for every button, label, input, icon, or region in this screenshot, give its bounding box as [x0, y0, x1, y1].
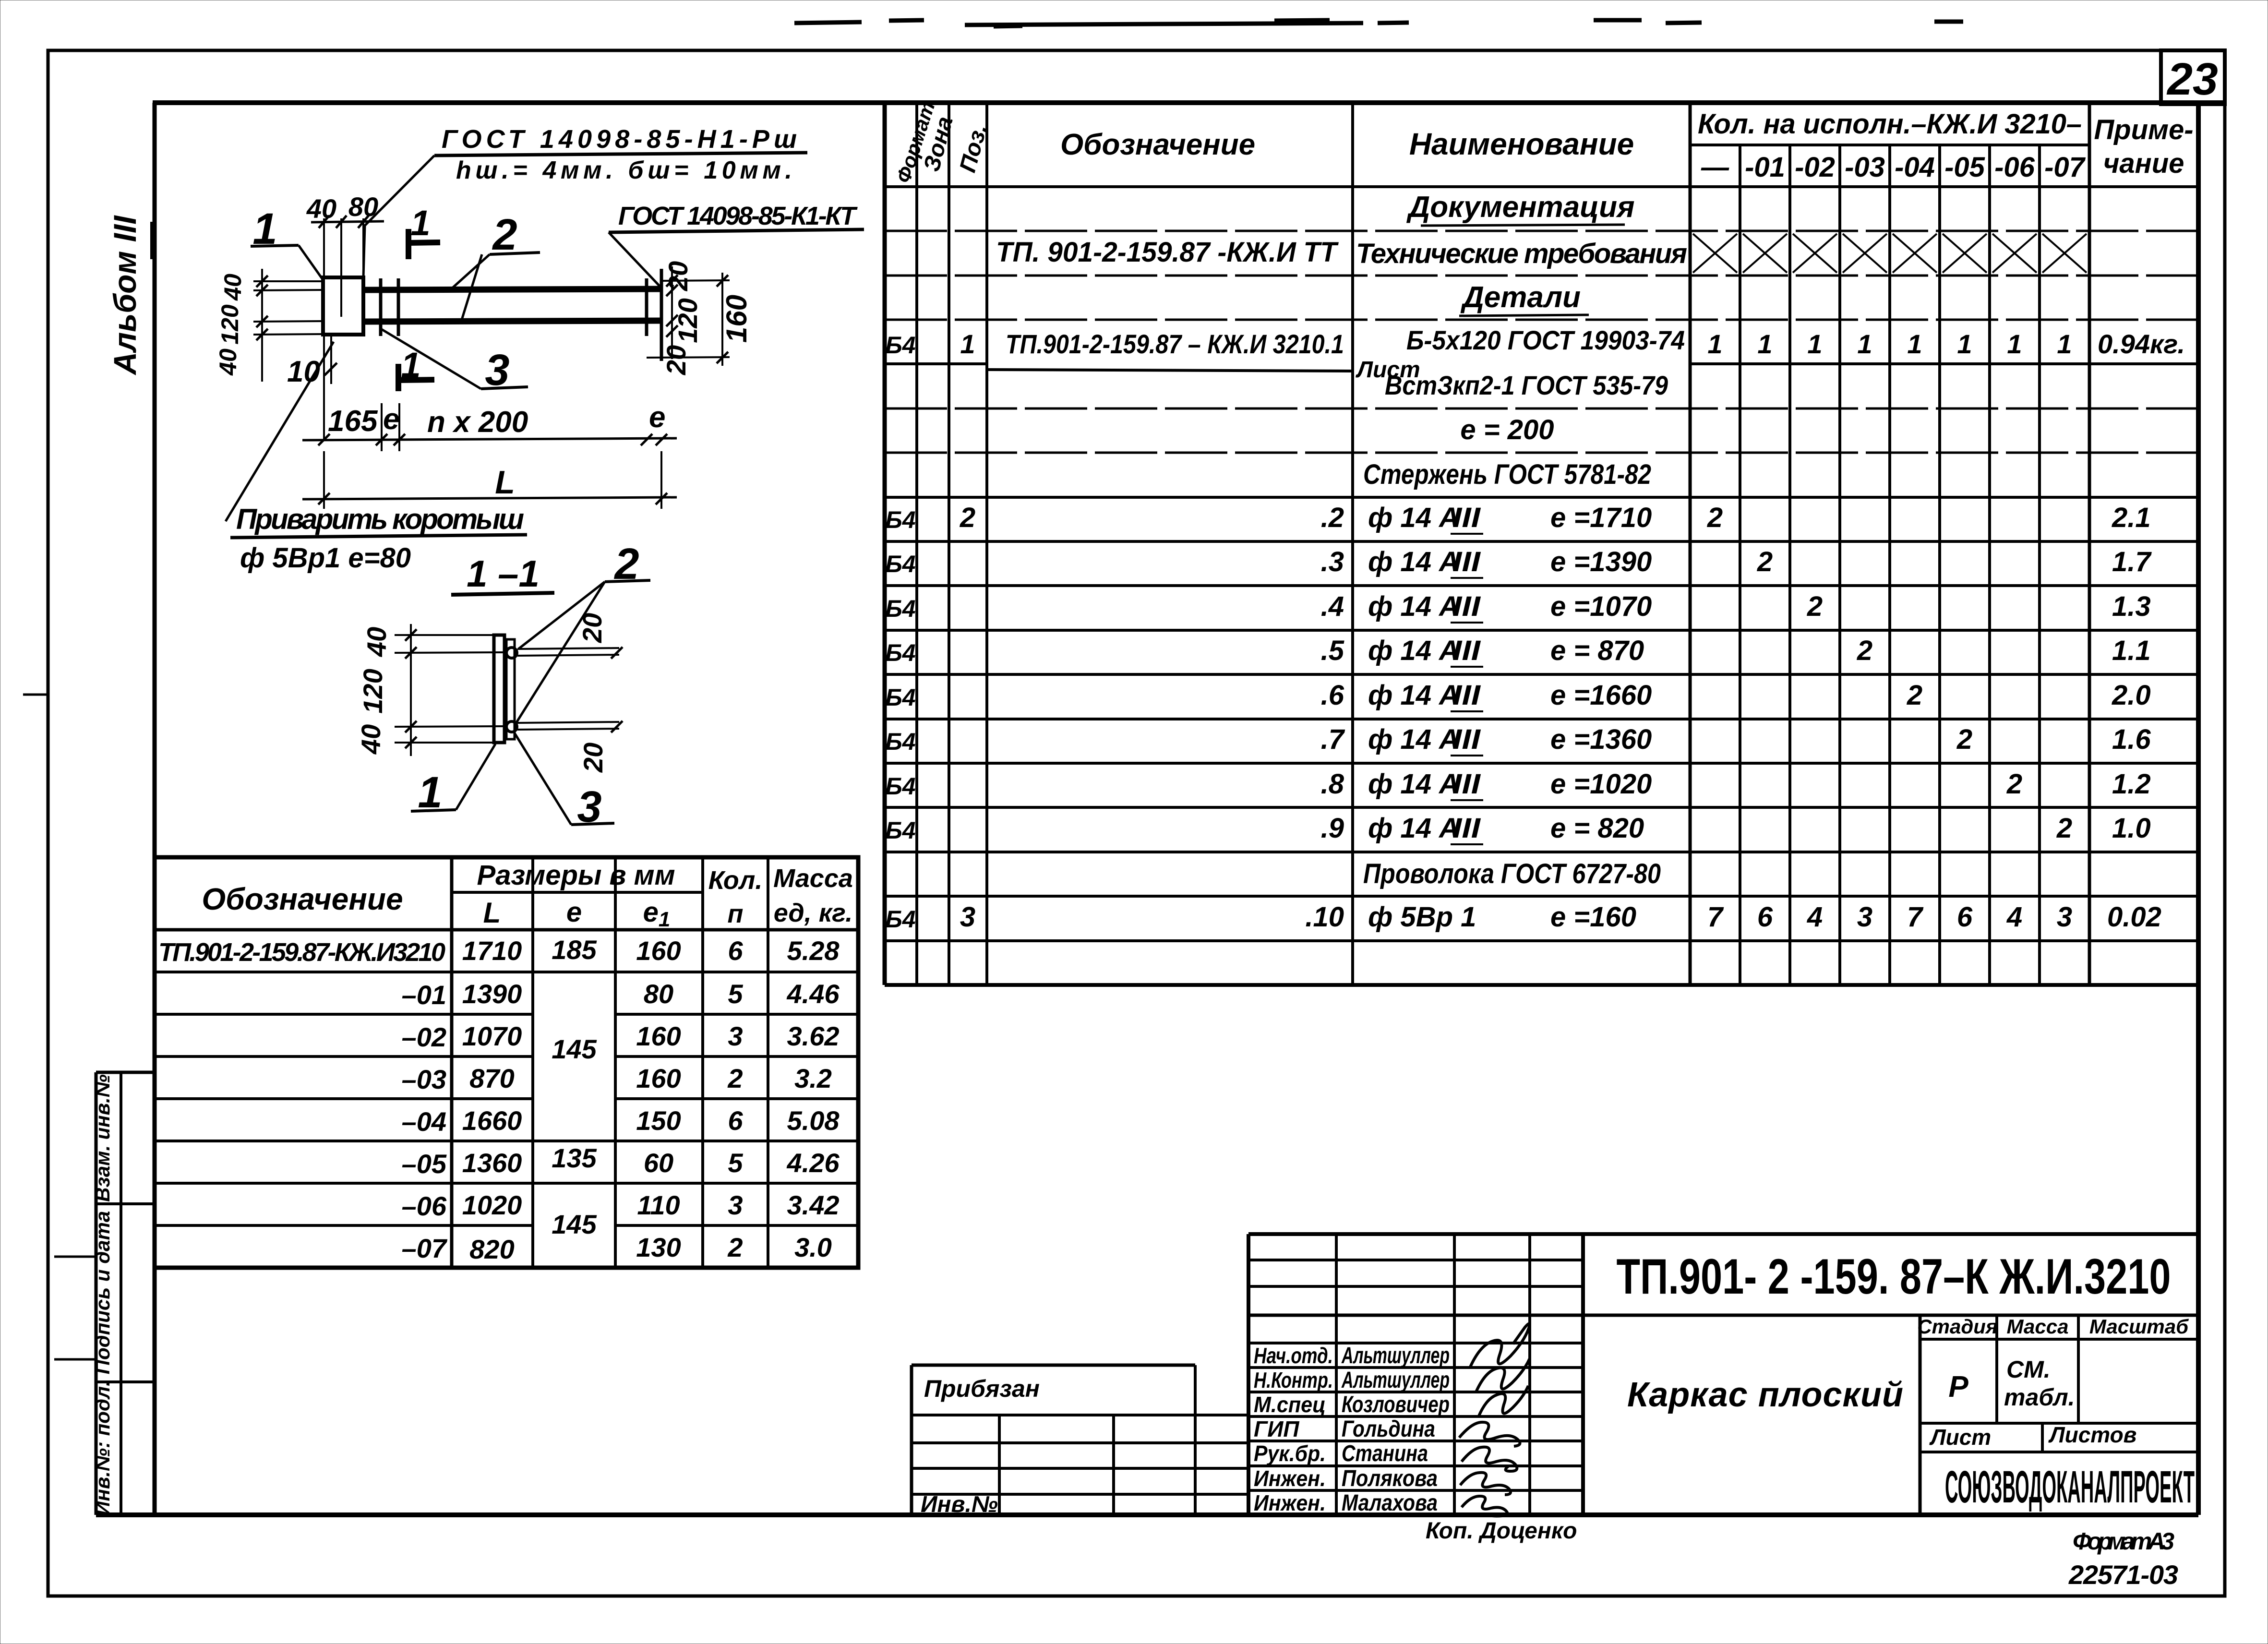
svg-text:ф 14 А: ф 14 А — [1368, 680, 1459, 711]
svg-text:2: 2 — [1757, 546, 1773, 577]
svg-text:ТП. 901-2-159.87 -КЖ.И ТТ: ТП. 901-2-159.87 -КЖ.И ТТ — [996, 237, 1339, 268]
svg-text:1: 1 — [1757, 329, 1772, 359]
svg-text:–05: –05 — [402, 1149, 447, 1179]
svg-text:ф 14 А: ф 14 А — [1368, 724, 1459, 755]
svg-text:Прибязан: Прибязан — [924, 1375, 1040, 1402]
svg-text:3.42: 3.42 — [787, 1190, 840, 1220]
svg-text:3.62: 3.62 — [787, 1021, 840, 1051]
svg-text:20: 20 — [661, 345, 691, 375]
svg-text:Б4: Б4 — [885, 332, 915, 359]
svg-text:150: 150 — [636, 1105, 681, 1136]
svg-text:1.6: 1.6 — [2112, 724, 2151, 755]
svg-text:е =1360: е =1360 — [1550, 724, 1652, 755]
svg-text:Инжен.: Инжен. — [1254, 1490, 1326, 1515]
svg-text:Б4: Б4 — [885, 639, 915, 666]
svg-text:ф 14 А: ф 14 А — [1368, 813, 1459, 844]
svg-text:Б4: Б4 — [885, 773, 915, 800]
svg-text:Стадия: Стадия — [1917, 1315, 1997, 1338]
svg-text:Приварить коротыш: Приварить коротыш — [236, 503, 524, 535]
svg-text:е =1020: е =1020 — [1550, 768, 1652, 800]
svg-text:2: 2 — [2056, 813, 2072, 844]
svg-text:Козловичер: Козловичер — [1342, 1392, 1450, 1417]
svg-text:СОЮЗВОДОКАНАЛПРОЕКТ: СОЮЗВОДОКАНАЛПРОЕКТ — [1945, 1462, 2195, 1512]
svg-text:III: III — [1452, 724, 1481, 755]
svg-text:1070: 1070 — [462, 1021, 522, 1051]
svg-text:ТП.901- 2 -159. 87–К Ж.И.3210: ТП.901- 2 -159. 87–К Ж.И.3210 — [1617, 1249, 2171, 1305]
svg-text:n х 200: n х 200 — [427, 406, 528, 439]
svg-text:Взам. инв.№: Взам. инв.№ — [91, 1074, 114, 1202]
svg-text:ТП.901-2-159.87 – КЖ.И 3210.: ТП.901-2-159.87 – КЖ.И 3210.1 — [1006, 329, 1344, 359]
svg-text:е: е — [566, 897, 582, 928]
svg-text:145: 145 — [552, 1034, 597, 1064]
svg-text:-04: -04 — [1895, 152, 1935, 183]
svg-text:Проволока ГОСТ 6727-80: Проволока ГОСТ 6727-80 — [1363, 858, 1661, 889]
svg-text:160: 160 — [636, 1021, 681, 1051]
svg-text:820: 820 — [469, 1234, 514, 1264]
svg-text:6: 6 — [728, 936, 743, 966]
svg-text:20: 20 — [663, 261, 693, 291]
svg-text:ф 14 А: ф 14 А — [1368, 502, 1459, 533]
svg-text:–07: –07 — [402, 1233, 448, 1263]
svg-text:-01: -01 — [1745, 152, 1785, 183]
svg-text:23: 23 — [2166, 54, 2218, 105]
svg-text:185: 185 — [552, 935, 597, 965]
svg-text:2: 2 — [1807, 591, 1823, 622]
svg-text:Кол.: Кол. — [708, 866, 763, 895]
svg-text:ф 14 А: ф 14 А — [1368, 546, 1459, 577]
svg-text:110: 110 — [637, 1190, 680, 1220]
svg-text:—: — — [1701, 152, 1729, 183]
svg-text:е =1710: е =1710 — [1550, 502, 1652, 533]
svg-text:7: 7 — [1907, 901, 1924, 933]
svg-text:е: е — [649, 401, 665, 434]
svg-text:2: 2 — [1956, 724, 1972, 755]
svg-text:80: 80 — [348, 192, 378, 222]
svg-text:ГОСТ 14098-85-Н1-Рш: ГОСТ 14098-85-Н1-Рш — [442, 125, 797, 154]
svg-text:ГОСТ 14098-85-К1-КТ: ГОСТ 14098-85-К1-КТ — [618, 202, 858, 230]
svg-text:.8: .8 — [1321, 768, 1344, 800]
svg-text:22571-03: 22571-03 — [2068, 1560, 2178, 1590]
svg-text:L: L — [495, 464, 515, 501]
svg-text:табл.: табл. — [2004, 1384, 2075, 1411]
svg-text:–06: –06 — [402, 1191, 447, 1221]
svg-text:.4: .4 — [1321, 591, 1344, 622]
svg-text:3: 3 — [1857, 901, 1872, 933]
svg-text:3: 3 — [2057, 901, 2072, 933]
svg-text:е =1390: е =1390 — [1550, 546, 1652, 577]
svg-text:0.02: 0.02 — [2107, 901, 2161, 933]
svg-text:3: 3 — [960, 901, 975, 933]
svg-text:160: 160 — [720, 295, 753, 343]
svg-text:Детали: Детали — [1460, 281, 1581, 314]
svg-text:1 –1: 1 –1 — [467, 552, 540, 595]
svg-text:1: 1 — [1807, 329, 1822, 359]
svg-text:ф 14 А: ф 14 А — [1368, 591, 1459, 622]
svg-text:Б4: Б4 — [885, 906, 915, 933]
svg-text:Масса: Масса — [773, 864, 853, 893]
svg-text:Обозначение: Обозначение — [1060, 128, 1255, 161]
svg-text:3: 3 — [728, 1021, 743, 1051]
svg-text:Инв.№: подл.: Инв.№: подл. — [91, 1380, 114, 1515]
svg-text:7: 7 — [1707, 901, 1724, 933]
svg-text:Инжен.: Инжен. — [1254, 1466, 1326, 1491]
svg-text:4.26: 4.26 — [787, 1148, 840, 1178]
svg-text:2: 2 — [727, 1232, 743, 1262]
svg-text:1: 1 — [1907, 329, 1922, 359]
svg-text:ФорматА3: ФорматА3 — [2073, 1528, 2174, 1555]
svg-text:60: 60 — [644, 1148, 673, 1178]
svg-text:е = 820: е = 820 — [1550, 813, 1644, 844]
svg-text:-03: -03 — [1845, 152, 1885, 183]
svg-text:135: 135 — [552, 1143, 597, 1173]
svg-text:.3: .3 — [1321, 546, 1344, 577]
svg-text:Документация: Документация — [1406, 191, 1634, 224]
svg-text:3.0: 3.0 — [794, 1232, 832, 1262]
svg-text:.6: .6 — [1321, 680, 1344, 711]
svg-text:1660: 1660 — [462, 1105, 522, 1136]
svg-text:III: III — [1452, 635, 1481, 666]
svg-text:Альбом III: Альбом III — [107, 215, 143, 376]
svg-text:Альтшуллер: Альтшуллер — [1341, 1368, 1450, 1393]
svg-text:Б4: Б4 — [885, 506, 915, 533]
svg-text:е1: е1 — [643, 897, 671, 931]
svg-text:160: 160 — [636, 936, 681, 966]
svg-text:е =1070: е =1070 — [1550, 591, 1652, 622]
svg-text:145: 145 — [552, 1209, 597, 1239]
svg-text:ТП.901-2-159.87-КЖ.И3210: ТП.901-2-159.87-КЖ.И3210 — [158, 938, 445, 967]
svg-text:–01: –01 — [402, 980, 446, 1010]
svg-text:е = 200: е = 200 — [1460, 414, 1554, 445]
svg-text:Коп. Доценко: Коп. Доценко — [1426, 1518, 1577, 1544]
svg-text:40: 40 — [361, 627, 392, 657]
svg-text:-05: -05 — [1944, 152, 1985, 183]
svg-text:е: е — [383, 403, 399, 436]
svg-text:1: 1 — [1707, 329, 1722, 359]
svg-text:1: 1 — [1857, 329, 1872, 359]
svg-text:1: 1 — [410, 203, 430, 243]
svg-text:Альтшуллер: Альтшуллер — [1341, 1343, 1450, 1368]
svg-text:5: 5 — [728, 1148, 743, 1178]
svg-text:hш.= 4мм. бш= 10мм.: hш.= 4мм. бш= 10мм. — [456, 156, 792, 184]
svg-text:2: 2 — [1857, 635, 1872, 666]
svg-text:ед, кг.: ед, кг. — [774, 899, 853, 927]
svg-text:Приме-: Приме- — [2094, 114, 2193, 145]
svg-text:.5: .5 — [1321, 635, 1344, 666]
svg-text:3.2: 3.2 — [794, 1063, 832, 1093]
svg-text:Наименование: Наименование — [1409, 127, 1634, 161]
svg-text:4: 4 — [1807, 901, 1823, 933]
svg-text:1: 1 — [960, 329, 975, 359]
svg-text:М.спец: М.спец — [1254, 1392, 1326, 1417]
svg-text:6: 6 — [1957, 901, 1973, 933]
svg-text:80: 80 — [644, 979, 673, 1009]
svg-text:1: 1 — [2007, 329, 2022, 359]
svg-text:ф 5Вр 1: ф 5Вр 1 — [1368, 901, 1476, 933]
svg-text:е =1660: е =1660 — [1550, 680, 1652, 711]
svg-text:1.3: 1.3 — [2112, 591, 2151, 622]
svg-text:2: 2 — [2006, 768, 2022, 800]
svg-text:870: 870 — [469, 1063, 514, 1093]
svg-text:1.1: 1.1 — [2112, 635, 2151, 666]
svg-text:120: 120 — [216, 304, 243, 345]
svg-text:е = 870: е = 870 — [1550, 635, 1644, 666]
svg-text:1390: 1390 — [462, 979, 522, 1009]
svg-text:Инв.№: Инв.№ — [921, 1492, 998, 1517]
svg-text:20: 20 — [578, 743, 608, 773]
svg-text:ВстЗкп2-1 ГОСТ 535-79: ВстЗкп2-1 ГОСТ 535-79 — [1385, 370, 1668, 400]
svg-text:Каркас плоский: Каркас плоский — [1627, 1376, 1903, 1414]
svg-text:Б4: Б4 — [885, 551, 915, 577]
svg-text:Б4: Б4 — [885, 817, 915, 844]
svg-text:Н.Контр.: Н.Контр. — [1254, 1368, 1333, 1392]
svg-text:п: п — [728, 900, 744, 928]
svg-text:1710: 1710 — [462, 936, 522, 966]
svg-text:160: 160 — [636, 1063, 681, 1093]
svg-text:III: III — [1452, 502, 1481, 533]
svg-text:Размеры в мм: Размеры в мм — [477, 860, 675, 891]
svg-text:4: 4 — [2006, 901, 2022, 933]
svg-text:165: 165 — [328, 405, 378, 438]
svg-text:2: 2 — [492, 210, 517, 259]
svg-text:2.0: 2.0 — [2112, 680, 2151, 711]
svg-text:ГИП: ГИП — [1254, 1416, 1299, 1441]
svg-text:2.1: 2.1 — [2112, 502, 2151, 533]
svg-text:Нач.отд.: Нач.отд. — [1254, 1343, 1333, 1368]
svg-text:40: 40 — [356, 724, 386, 755]
svg-text:Малахова: Малахова — [1342, 1490, 1438, 1516]
svg-text:1360: 1360 — [462, 1148, 522, 1178]
svg-text:0.94кг.: 0.94кг. — [2098, 329, 2185, 359]
svg-text:III: III — [1452, 591, 1481, 622]
svg-text:-06: -06 — [1994, 152, 2035, 183]
svg-text:е =160: е =160 — [1550, 901, 1636, 933]
svg-text:III: III — [1452, 813, 1481, 844]
svg-text:2: 2 — [1707, 502, 1723, 533]
svg-text:Подпись и дата: Подпись и дата — [91, 1211, 114, 1374]
svg-text:1: 1 — [1957, 329, 1972, 359]
svg-text:–03: –03 — [402, 1064, 446, 1094]
svg-text:Рук.бр.: Рук.бр. — [1254, 1441, 1326, 1466]
svg-text:Лист: Лист — [1929, 1425, 1991, 1450]
svg-text:Р: Р — [1948, 1370, 1968, 1404]
svg-text:III: III — [1452, 546, 1481, 577]
svg-text:1.2: 1.2 — [2112, 768, 2151, 800]
svg-text:1.0: 1.0 — [2112, 813, 2151, 844]
svg-text:-07: -07 — [2044, 152, 2086, 183]
svg-text:ф 5Вр1 е=80: ф 5Вр1 е=80 — [240, 542, 411, 574]
svg-text:1.7: 1.7 — [2112, 546, 2152, 577]
svg-text:120: 120 — [672, 298, 703, 343]
svg-text:ф 14 А: ф 14 А — [1368, 635, 1459, 666]
svg-text:130: 130 — [636, 1232, 681, 1262]
svg-text:Обозначение: Обозначение — [202, 882, 403, 916]
svg-text:4.46: 4.46 — [787, 979, 840, 1009]
svg-text:40: 40 — [215, 348, 241, 376]
svg-text:чание: чание — [2103, 148, 2184, 179]
svg-text:Полякова: Полякова — [1342, 1466, 1438, 1491]
svg-text:Б4: Б4 — [885, 595, 915, 622]
svg-text:5.28: 5.28 — [787, 936, 840, 966]
svg-text:2: 2 — [1907, 680, 1922, 711]
svg-text:2: 2 — [960, 502, 975, 533]
svg-text:.9: .9 — [1321, 813, 1344, 844]
svg-text:5: 5 — [728, 979, 743, 1009]
svg-text:L: L — [483, 897, 501, 929]
svg-text:.10: .10 — [1305, 901, 1344, 933]
svg-text:III: III — [1452, 768, 1481, 800]
svg-text:СМ.: СМ. — [2006, 1356, 2051, 1383]
svg-text:.2: .2 — [1321, 502, 1344, 533]
svg-text:.7: .7 — [1321, 724, 1345, 755]
svg-text:–04: –04 — [402, 1106, 446, 1137]
svg-text:6: 6 — [728, 1105, 743, 1136]
svg-text:1: 1 — [2057, 329, 2072, 359]
svg-text:Кол. на исполн.–КЖ.И 3210–: Кол. на исполн.–КЖ.И 3210– — [1698, 108, 2082, 140]
svg-text:3: 3 — [728, 1190, 743, 1220]
svg-text:5.08: 5.08 — [787, 1105, 840, 1136]
svg-text:40: 40 — [219, 274, 246, 301]
svg-text:1020: 1020 — [462, 1190, 522, 1220]
svg-text:-02: -02 — [1795, 152, 1835, 183]
svg-text:Листов: Листов — [2048, 1422, 2136, 1447]
svg-text:–02: –02 — [402, 1022, 446, 1052]
svg-text:Б-5х120 ГОСТ 19903-74: Б-5х120 ГОСТ 19903-74 — [1406, 325, 1685, 355]
svg-text:Технические требования: Технические требования — [1356, 238, 1687, 269]
svg-text:Б4: Б4 — [885, 728, 915, 755]
svg-text:Масса: Масса — [2007, 1315, 2069, 1338]
svg-text:Станина: Станина — [1342, 1441, 1428, 1466]
svg-text:40: 40 — [306, 193, 336, 224]
svg-text:Гольдина: Гольдина — [1342, 1416, 1435, 1442]
svg-text:III: III — [1452, 680, 1481, 711]
svg-text:6: 6 — [1757, 901, 1773, 933]
svg-text:Масштаб: Масштаб — [2089, 1315, 2189, 1338]
svg-text:2: 2 — [727, 1063, 743, 1093]
svg-text:Стержень ГОСТ 5781-82: Стержень ГОСТ 5781-82 — [1363, 459, 1651, 490]
svg-text:120: 120 — [358, 669, 388, 713]
svg-text:ф 14 А: ф 14 А — [1368, 768, 1459, 800]
svg-text:Б4: Б4 — [885, 684, 915, 711]
